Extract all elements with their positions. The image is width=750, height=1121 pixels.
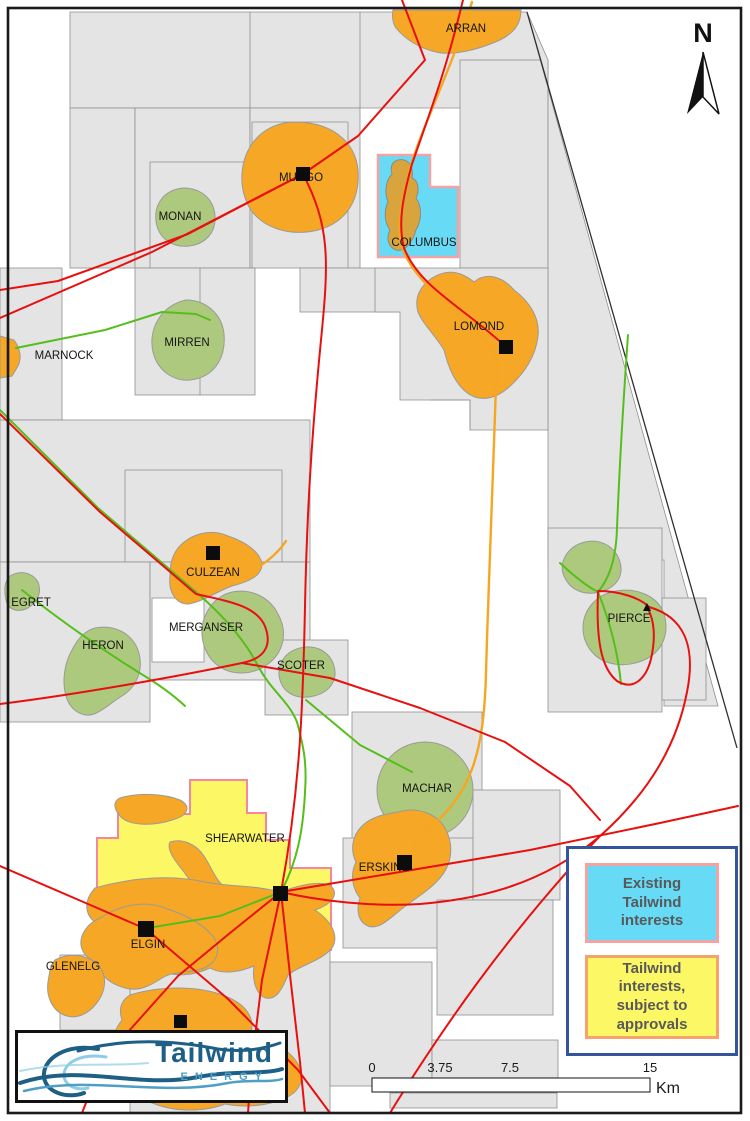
legend-pending-interests: Tailwind interests, subject to approvals [585,955,719,1039]
legend-existing-label: Existing Tailwind interests [600,875,704,931]
field-label-pierce: PIERCE [608,613,651,625]
scale-tick-0: 0 [368,1060,375,1075]
field-label-egret: EGRET [11,597,51,609]
field-label-monan: MONAN [159,211,202,223]
field-label-culzean: CULZEAN [186,567,240,579]
field-label-lomond: LOMOND [454,321,504,333]
field-label-heron: HERON [82,640,124,652]
scale-tick-375: 3.75 [427,1060,452,1075]
field-label-machar: MACHAR [402,783,452,795]
field-scoter [279,647,335,697]
elgin-marker [138,921,154,937]
scale-unit: Km [656,1080,680,1097]
field-label-marnock: MARNOCK [35,350,94,362]
erskine-marker [397,855,412,870]
field-label-mirren: MIRREN [164,337,209,349]
field-label-elgin: ELGIN [131,939,166,951]
logo-title: Tailwind [155,1037,273,1069]
field-label-columbus: COLUMBUS [391,237,457,249]
map-legend: Existing Tailwind interests Tailwind int… [566,846,738,1056]
map-canvas: ARRAN MUNGO MONAN COLUMBUS LOMOND MARNOC… [0,0,750,1121]
legend-existing-interests: Existing Tailwind interests [585,863,719,943]
field-pierce-north [562,541,621,593]
field-label-scoter: SCOTER [277,660,325,672]
culzean-marker [206,546,220,560]
shearwater-marker [273,886,288,901]
tailwind-logo: Tailwind ENERGY [15,1030,288,1103]
field-label-glenelg: GLENELG [46,961,100,973]
logo-subtitle: ENERGY [181,1071,269,1083]
scale-tick-75: 7.5 [501,1060,519,1075]
mungo-marker [296,167,310,181]
legend-pending-label: Tailwind interests, subject to approvals [600,960,704,1035]
scale-tick-15: 15 [643,1060,657,1075]
field-label-merganser: MERGANSER [169,622,243,634]
franklin-marker [174,1015,187,1028]
north-label: N [693,18,713,48]
field-label-shearwater: SHEARWATER [205,833,285,845]
lomond-marker [499,340,513,354]
field-label-arran: ARRAN [446,23,486,35]
